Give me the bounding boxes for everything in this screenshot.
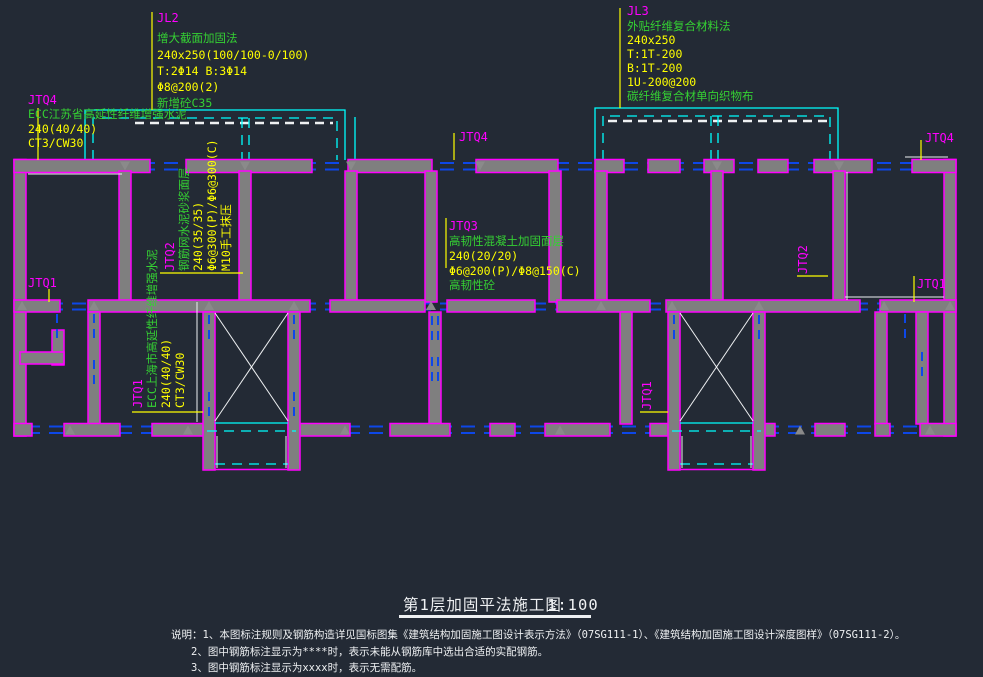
jl3-spec: 240x250 (627, 33, 676, 47)
jtq1-method: ECC上海市高延性纤维增强水泥 (145, 249, 159, 408)
jtq2-spec: 240(35/35) (191, 202, 205, 271)
jl3-label: JL3 (627, 4, 649, 18)
note-line-2: 2、图中钢筋标注显示为****时，表示未能从钢筋库中选出合适的实配钢筋。 (191, 645, 548, 658)
annotation-jl3: JL3 外贴纤维复合材料法 240x250 T:1T-200 B:1T-200 … (627, 4, 754, 103)
construction-outline-right (595, 108, 838, 160)
jtq4-spec: 240(40/40) (28, 122, 97, 136)
title-scale: 1:100 (547, 596, 599, 614)
jtq3-material: 高韧性砼 (449, 278, 495, 292)
jtq1-left-tag: JTQ1 (28, 276, 57, 290)
jtq4-label: JTQ4 (28, 93, 57, 107)
jl3-wrap: 1U-200@200 (627, 75, 696, 89)
note-line-3: 3、图中钢筋标注显示为xxxx时，表示无需配筋。 (191, 661, 422, 674)
jtq3-label: JTQ3 (449, 219, 478, 233)
jtq4-right-tag: JTQ4 (925, 131, 954, 145)
title-text: 第1层加固平法施工图 (403, 596, 562, 614)
jtq2-label: JTQ2 (163, 242, 177, 271)
jtq1-grade: CT3/CW30 (173, 353, 187, 408)
jtq3-rebar: Φ6@200(P)/Φ8@150(C) (449, 264, 581, 278)
jtq3-method: 高韧性混凝土加固面层 (449, 234, 564, 248)
jtq4-mid-tag: JTQ4 (459, 130, 488, 144)
floor-plan-drawing: JL2 增大截面加固法 240x250(100/100-0/100) T:2Φ1… (0, 0, 983, 677)
stair-shaft-right (668, 312, 765, 470)
jtq1-spec: 240(40/40) (159, 339, 173, 408)
jl2-stirrup: Φ8@200(2) (157, 80, 219, 94)
jl2-spec: 240x250(100/100-0/100) (157, 48, 309, 62)
annotation-jl2: JL2 增大截面加固法 240x250(100/100-0/100) T:2Φ1… (157, 11, 309, 110)
title-underline (399, 615, 591, 618)
jl3-material: 碳纤维复合材单向织物布 (627, 89, 754, 103)
jl2-rebar: T:2Φ14 B:3Φ14 (157, 64, 247, 78)
jl3-top: T:1T-200 (627, 47, 682, 61)
jtq2-rebar: Φ6@300(P)/Φ6@300(C) (205, 139, 219, 271)
jl2-label: JL2 (157, 11, 179, 25)
notes: 说明：1、本图标注规则及钢筋构造详见国标图集《建筑结构加固施工图设计表示方法》（… (171, 628, 905, 674)
drawing-title: 第1层加固平法施工图 1:100 (399, 596, 599, 618)
cad-viewport: JL2 增大截面加固法 240x250(100/100-0/100) T:2Φ1… (0, 0, 983, 677)
stair-shaft-left (203, 312, 300, 470)
jtq2-note: M10手工抹压 (219, 204, 233, 271)
jtq4-grade: CT3/CW30 (28, 136, 83, 150)
note-line-1: 说明：1、本图标注规则及钢筋构造详见国标图集《建筑结构加固施工图设计表示方法》（… (171, 628, 905, 641)
jtq3-spec: 240(20/20) (449, 249, 518, 263)
jl3-bottom: B:1T-200 (627, 61, 682, 75)
jl2-method: 增大截面加固法 (157, 31, 238, 45)
jtq1-label: JTQ1 (131, 379, 145, 408)
jtq1-right-tag: JTQ1 (917, 277, 946, 291)
jl3-method: 外贴纤维复合材料法 (627, 19, 731, 33)
jtq2-right-tag: JTQ2 (796, 245, 810, 274)
jtq1-shaft2-tag: JTQ1 (640, 381, 654, 410)
jtq4-method: ECC江苏省高延性纤维增强水泥 (28, 107, 187, 121)
jtq2-method: 钢筋网水泥砂浆面层 (177, 168, 191, 272)
